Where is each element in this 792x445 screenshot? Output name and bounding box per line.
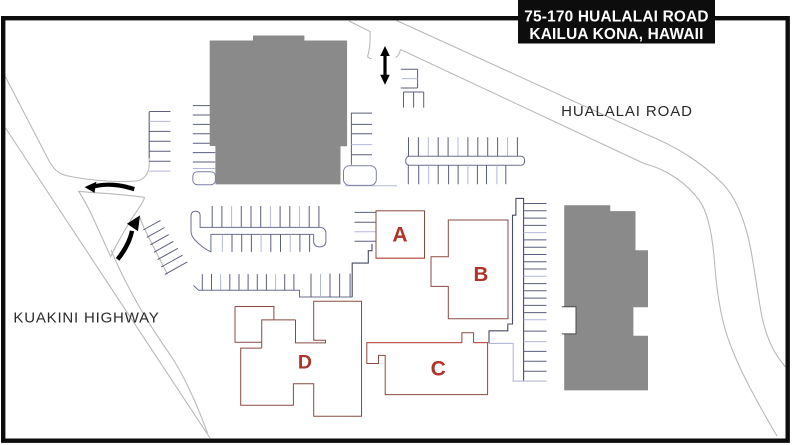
svg-text:A: A	[392, 224, 407, 247]
svg-text:75-170 HUALALAI ROAD: 75-170 HUALALAI ROAD	[524, 8, 708, 25]
svg-text:KUAKINI HIGHWAY: KUAKINI HIGHWAY	[13, 310, 159, 327]
svg-text:D: D	[298, 352, 312, 374]
svg-text:HUALALAI ROAD: HUALALAI ROAD	[561, 103, 693, 120]
svg-text:KAILUA KONA, HAWAII: KAILUA KONA, HAWAII	[529, 26, 703, 43]
svg-text:B: B	[473, 263, 488, 286]
svg-text:C: C	[431, 358, 446, 381]
